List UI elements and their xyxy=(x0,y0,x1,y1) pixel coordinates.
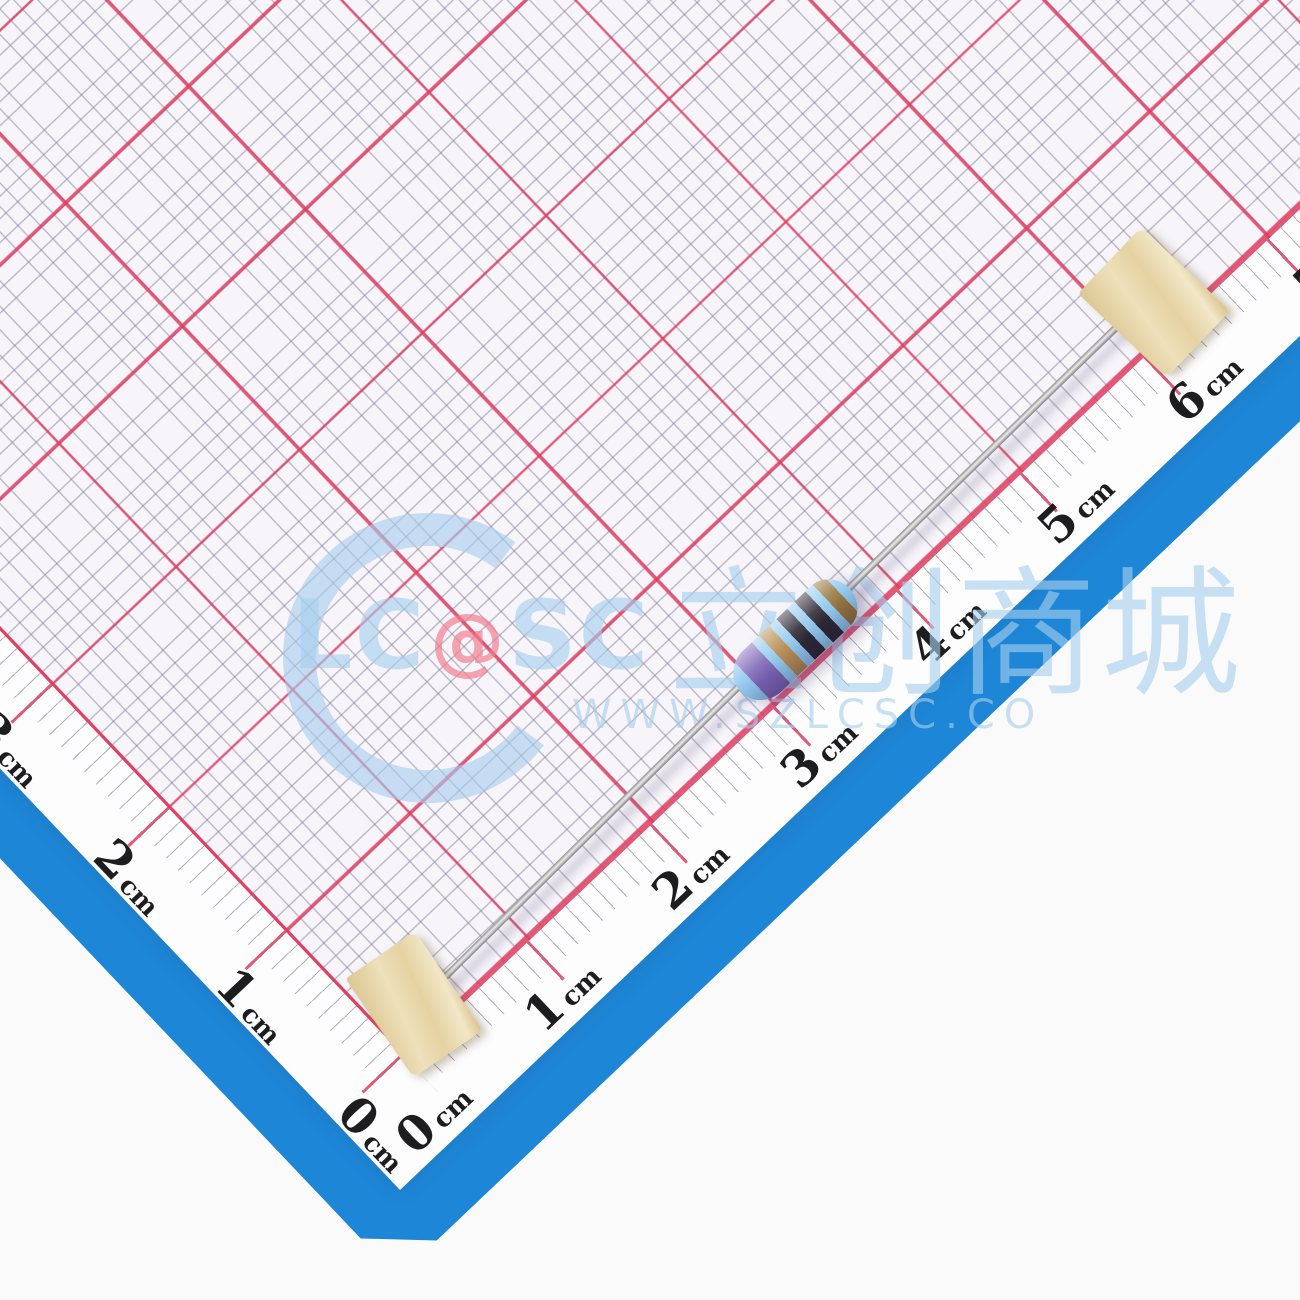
scale-board: 0cm 1cm 2cm 3cm 4cm 5cm 6cm 7cm 0cm 1cm … xyxy=(0,0,1300,1190)
product-photo: 0cm 1cm 2cm 3cm 4cm 5cm 6cm 7cm 0cm 1cm … xyxy=(0,0,1300,1300)
